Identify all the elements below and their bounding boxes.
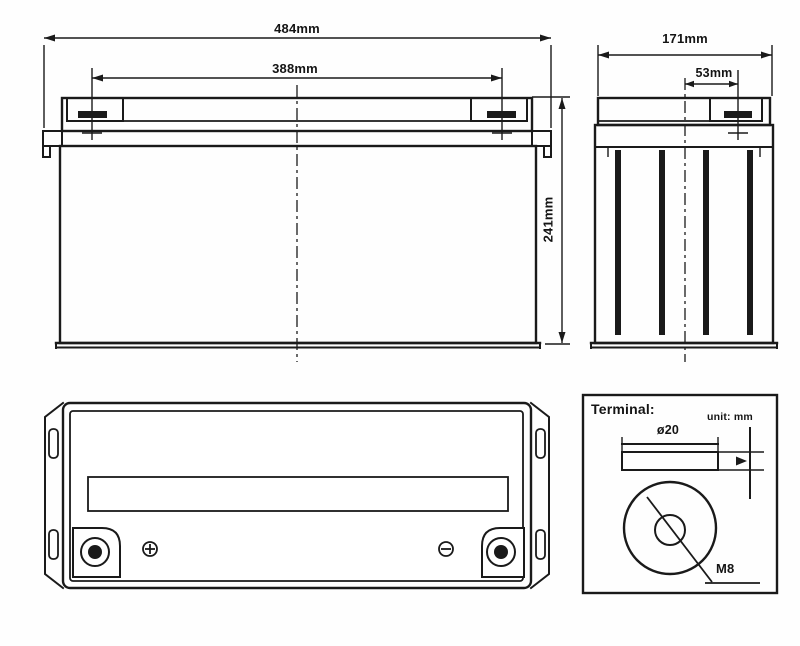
top-left-flange <box>45 403 63 588</box>
side-terminal-offset-dimension <box>685 81 738 87</box>
top-right-flange-slot <box>536 530 545 559</box>
front-view <box>43 35 570 363</box>
battery-dimension-drawing: 484mm 388mm 241mm 171mm 53mm Terminal: u… <box>0 0 800 646</box>
terminal-thread-label: M8 <box>716 561 734 576</box>
top-left-flange-slot <box>49 530 58 559</box>
top-right-flange <box>531 403 549 588</box>
front-height-label: 241mm <box>541 174 556 266</box>
side-ribs <box>615 150 753 335</box>
side-width-label: 171mm <box>640 31 730 46</box>
front-terminal-spacing-label: 388mm <box>250 61 340 76</box>
top-left-terminal <box>73 528 120 577</box>
front-width-label: 484mm <box>252 21 342 36</box>
drawing-linework <box>0 0 800 646</box>
unit-note-label: unit: mm <box>707 411 753 423</box>
positive-terminal-mark-icon <box>143 542 157 556</box>
terminal-diameter-label: ø20 <box>640 423 696 437</box>
terminal-detail-title: Terminal: <box>591 401 655 417</box>
front-left-flange <box>43 131 62 146</box>
top-right-flange-slot <box>536 429 545 458</box>
top-view <box>45 403 549 588</box>
top-left-flange-slot <box>49 429 58 458</box>
terminal-top-detail <box>624 482 760 583</box>
front-right-flange <box>532 131 551 146</box>
side-view <box>591 45 777 362</box>
top-right-terminal <box>482 528 524 577</box>
side-terminal-offset-label: 53mm <box>676 66 752 80</box>
